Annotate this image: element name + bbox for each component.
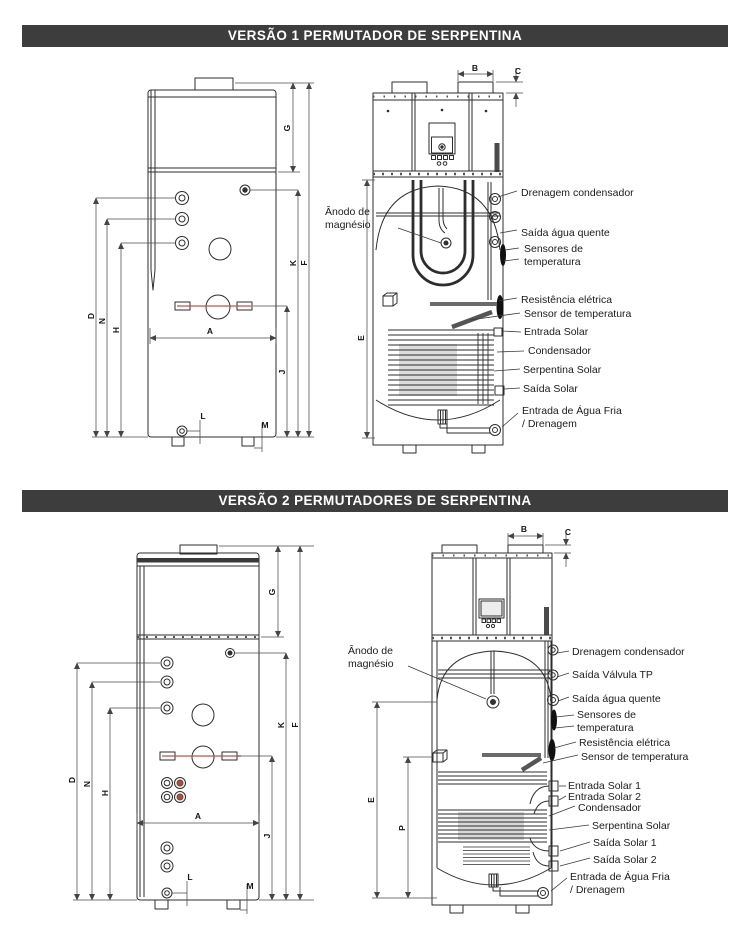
v1-air-duct	[458, 82, 493, 93]
v2-dimension-lines	[73, 546, 314, 914]
v1-side-fitting-ports	[176, 185, 251, 250]
v1-foot	[472, 445, 485, 453]
label-serpentina-solar-v1: Serpentina Solar	[523, 364, 601, 377]
v1-air-duct	[392, 82, 427, 93]
v1-drain-assembly	[438, 410, 501, 436]
v2-solar-ports	[161, 778, 186, 873]
dim-letter-K: K	[288, 259, 298, 266]
v2-solar-outlet-2	[549, 861, 558, 871]
dim-letter-M: M	[261, 420, 268, 430]
v2-sensor-ports	[160, 704, 241, 768]
v1-foot	[242, 437, 254, 446]
dim-letter-L: L	[200, 411, 205, 421]
v1-bottom-port	[177, 426, 187, 436]
v1-dip-tube	[151, 90, 155, 290]
dim-letter-P: P	[397, 825, 407, 831]
v1-solar-sensor-cube	[383, 293, 397, 306]
label-sensores-temperatura-v1: Sensores de temperatura	[524, 243, 583, 269]
v2-solar-inlet-2	[549, 796, 558, 806]
v2-temp-sensor-probe	[522, 758, 541, 770]
v2-solar-inlet-1	[549, 781, 558, 791]
dim-letter-L: L	[187, 872, 192, 882]
v1-cutaway-view	[373, 82, 506, 453]
label-sensor-temperatura-v1: Sensor de temperatura	[524, 308, 631, 321]
label-drenagem-condensador-v1: Drenagem condensador	[521, 187, 634, 200]
v2-control-display	[479, 599, 504, 628]
dim-letter-A: A	[195, 811, 201, 821]
dim-letter-N: N	[97, 318, 107, 324]
v1-condensate-pipe	[495, 143, 500, 172]
v2-heater-flange	[549, 739, 556, 761]
v1-dimension-view	[148, 78, 276, 446]
dim-letter-K: K	[276, 721, 286, 728]
dim-letter-E: E	[366, 797, 376, 803]
dim-letter-E: E	[356, 335, 366, 341]
label-resistencia-eletrica-v1: Resistência elétrica	[521, 294, 612, 307]
v2-solar-outlet-1	[549, 846, 558, 856]
label-anodo-magnesio-v2: Ânodo de magnésio	[348, 645, 394, 671]
label-condensador-v2: Condensador	[578, 802, 641, 815]
v1-tank-outline	[148, 90, 276, 437]
v2-foot	[227, 900, 240, 909]
v1-dimension-lines	[92, 83, 314, 452]
v1-tank-dome	[376, 186, 500, 250]
dim-letter-J: J	[262, 833, 272, 838]
v2-sensor-pocket	[551, 710, 557, 731]
label-entrada-agua-fria-v2: Entrada de Água Fria / Drenagem	[570, 871, 670, 897]
v2-tank-outline	[137, 553, 259, 900]
dim-letter-C: C	[565, 527, 571, 537]
dim-letter-C: C	[515, 66, 521, 76]
v2-drain-assembly	[489, 874, 549, 899]
v2-upper-coil	[438, 772, 547, 784]
v1-solar-inlet-fitting	[494, 328, 502, 336]
v2-side-fitting-ports	[161, 649, 235, 715]
label-anodo-magnesio-v1: Ânodo de magnésio	[325, 206, 371, 232]
label-entrada-agua-fria-v1: Entrada de Água Fria / Drenagem	[522, 405, 622, 431]
v2-right-fittings	[548, 645, 559, 706]
label-sensor-temperatura-v2: Sensor de temperatura	[581, 751, 688, 764]
section2-header: VERSÃO 2 PERMUTADORES DE SERPENTINA	[22, 490, 728, 512]
v1-top-cap	[195, 78, 233, 90]
dim-letter-D: D	[67, 777, 77, 783]
dim-letter-N: N	[82, 781, 92, 787]
dim-letter-M: M	[246, 881, 253, 891]
dim-letter-F: F	[290, 722, 300, 727]
label-saida-solar-v1: Saída Solar	[523, 383, 578, 396]
v1-foot	[172, 437, 184, 446]
v2-foot	[450, 905, 463, 913]
v2-label-leaders	[408, 651, 590, 891]
dim-letter-G: G	[282, 124, 292, 131]
label-condensador-v1: Condensador	[528, 345, 591, 358]
dim-letter-A: A	[207, 326, 213, 336]
v2-air-duct	[442, 545, 477, 553]
label-saida-agua-quente-v1: Saída água quente	[521, 227, 610, 240]
v2-solar-sensor-cube	[433, 750, 447, 762]
v1-sensor-ports	[175, 238, 252, 319]
label-entrada-solar-v1: Entrada Solar	[524, 326, 588, 339]
dim-letter-H: H	[111, 327, 121, 333]
dim-letter-H: H	[100, 790, 110, 796]
v2-air-duct	[508, 545, 543, 553]
label-serpentina-solar-v2: Serpentina Solar	[592, 820, 670, 833]
dim-letter-B: B	[521, 524, 527, 534]
v1-anode-rod	[439, 188, 447, 233]
manual-page: A B C D E F G H J K L M N A B C D E F G …	[0, 0, 750, 938]
label-saida-agua-quente-v2: Saída água quente	[572, 693, 661, 706]
v2-foot	[155, 900, 168, 909]
v2-cutaway-dimensions	[372, 531, 571, 898]
v1-sensor-pocket	[500, 244, 506, 266]
dim-letter-G: G	[267, 588, 277, 595]
v2-condensate-pipe	[544, 607, 549, 635]
v2-dimension-view	[137, 545, 259, 909]
label-sensores-temperatura-v2: Sensores de temperatura	[577, 709, 636, 735]
v1-solar-coil	[388, 330, 494, 405]
v1-control-display	[429, 123, 455, 165]
label-saida-valvula-tp-v2: Saída Válvula TP	[572, 669, 653, 682]
v2-foot	[516, 905, 529, 913]
dim-letter-D: D	[86, 313, 96, 319]
label-saida-solar-2-v2: Saída Solar 2	[593, 854, 657, 867]
label-saida-solar-1-v2: Saída Solar 1	[593, 837, 657, 850]
dim-letter-B: B	[472, 63, 478, 73]
label-resistencia-eletrica-v2: Resistência elétrica	[579, 737, 670, 750]
label-drenagem-condensador-v2: Drenagem condensador	[572, 646, 685, 659]
v2-lower-coil	[463, 847, 530, 865]
dim-letter-J: J	[277, 369, 287, 374]
section1-header: VERSÃO 1 PERMUTADOR DE SERPENTINA	[22, 25, 728, 47]
v2-cutaway-view	[432, 545, 559, 913]
dim-letter-F: F	[299, 260, 309, 265]
v2-main-coil	[438, 810, 547, 842]
v2-bottom-port	[162, 888, 172, 898]
v1-foot	[403, 445, 416, 453]
